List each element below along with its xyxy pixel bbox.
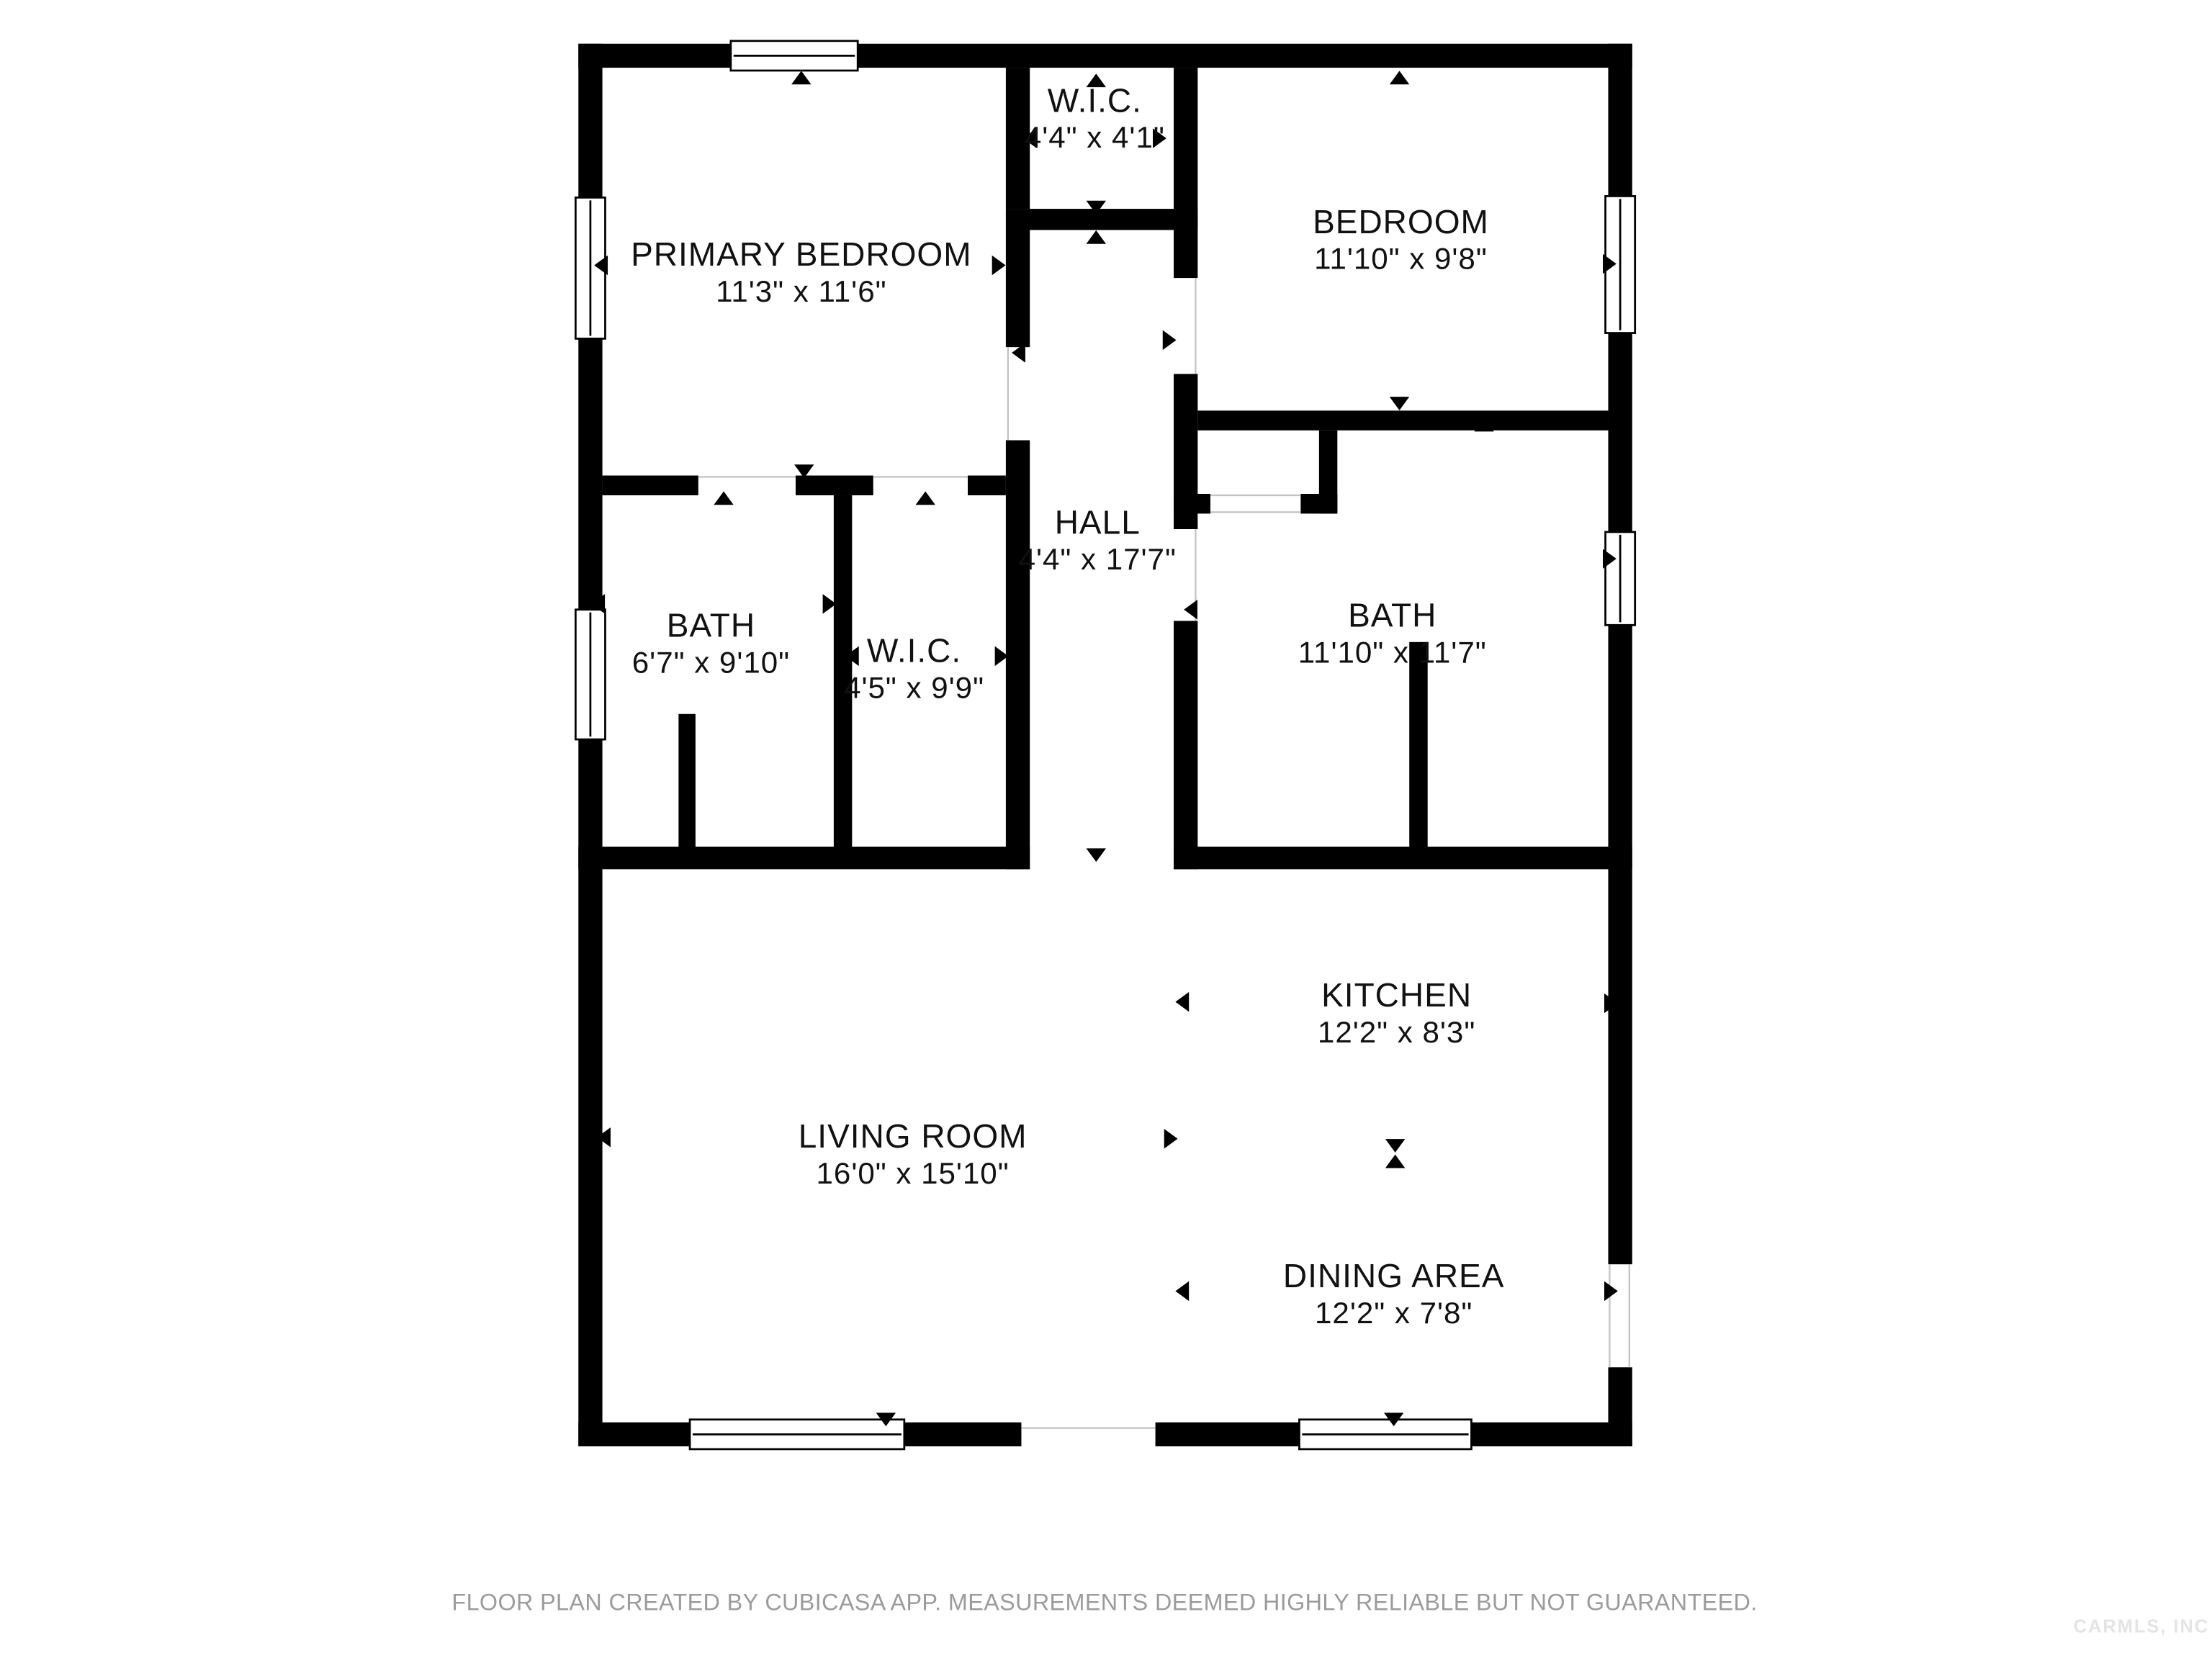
door-direction-arrow [1163, 330, 1177, 350]
window-marker [731, 41, 858, 71]
door-direction-arrow [1184, 600, 1197, 619]
door-direction-arrow [916, 491, 935, 505]
room-dimensions-label: 16'0" x 15'10" [817, 1156, 1010, 1190]
wall-segment [1006, 209, 1197, 230]
room-name-label: W.I.C. [1048, 81, 1142, 119]
room-dimensions-label: 6'7" x 9'10" [632, 645, 790, 679]
window-marker [1299, 1420, 1471, 1449]
door-direction-arrow [714, 491, 733, 505]
room-name-label: BATH [1348, 597, 1437, 634]
room-name-label: BEDROOM [1313, 203, 1489, 240]
door-direction-arrow [1385, 1155, 1405, 1168]
footer-disclaimer: FLOOR PLAN CREATED BY CUBICASA APP. MEAS… [451, 1589, 1757, 1615]
wall-segment [1174, 621, 1197, 869]
room-dimensions-label: 4'4" x 4'1" [1025, 120, 1165, 154]
room-dimensions-label: 11'10" x 11'7" [1298, 636, 1487, 670]
door-opening [1021, 1418, 1155, 1449]
floor-plan-page: PRIMARY BEDROOM11'3" x 11'6"W.I.C.4'4" x… [0, 0, 2212, 1658]
wall-segment [578, 847, 1030, 869]
wall-segment [1174, 494, 1210, 513]
window-marker [1606, 532, 1635, 625]
wall-segment [1174, 68, 1197, 278]
room-dimensions-label: 12'2" x 8'3" [1318, 1015, 1475, 1049]
room-name-label: W.I.C. [867, 632, 961, 670]
room-name-label: HALL [1055, 503, 1141, 541]
room-dimensions-label: 4'5" x 9'9" [844, 671, 984, 705]
window-marker [575, 610, 605, 739]
wall-segment [1409, 642, 1427, 847]
room-name-label: BATH [667, 606, 755, 644]
room-dimensions-label: 4'4" x 17'7" [1019, 542, 1177, 576]
door-direction-arrow [1385, 1139, 1405, 1153]
room-dimensions-label: 11'10" x 9'8" [1314, 242, 1488, 276]
window-marker [690, 1420, 904, 1449]
room-name-label: DINING AREA [1283, 1257, 1505, 1294]
wall-segment [603, 476, 698, 495]
wall-segment [1174, 847, 1632, 869]
door-direction-arrow [1175, 1281, 1189, 1301]
room-name-label: LIVING ROOM [799, 1117, 1028, 1155]
wall-segment [968, 476, 1006, 495]
floor-plan-canvas: PRIMARY BEDROOM11'3" x 11'6"W.I.C.4'4" x… [0, 0, 2212, 1658]
wall-segment [1197, 410, 1608, 430]
door-direction-arrow [1164, 1129, 1178, 1148]
room-dimensions-label: 11'3" x 11'6" [716, 274, 886, 308]
door-direction-arrow [791, 71, 811, 84]
room-labels-layer: PRIMARY BEDROOM11'3" x 11'6"W.I.C.4'4" x… [631, 81, 1504, 1330]
wall-segment [678, 714, 696, 847]
door-direction-arrow [1390, 71, 1409, 84]
door-direction-arrow [1087, 848, 1106, 862]
room-name-label: PRIMARY BEDROOM [631, 235, 971, 273]
watermark: CARMLS, INC [2074, 1617, 2209, 1637]
door-direction-arrow [1175, 992, 1189, 1012]
room-dimensions-label: 12'2" x 7'8" [1315, 1296, 1473, 1330]
wall-segment [1300, 494, 1337, 513]
wall-segment [1006, 230, 1030, 347]
room-name-label: KITCHEN [1321, 976, 1472, 1014]
wall-segment [796, 476, 873, 495]
wall-segment [1006, 441, 1030, 870]
door-direction-arrow [992, 256, 1006, 275]
door-direction-arrow [1087, 230, 1106, 244]
door-direction-arrow [1390, 397, 1409, 410]
